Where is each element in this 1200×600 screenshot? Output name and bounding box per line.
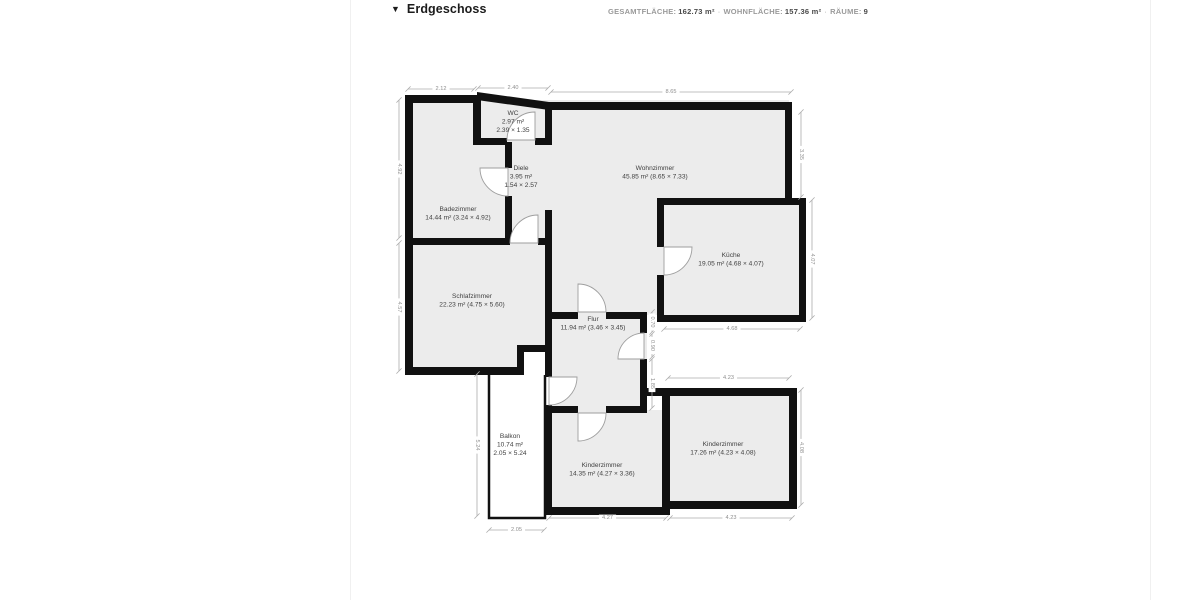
dimension-1.85: 1.85 (649, 356, 656, 410)
dimension-label: 2.12 (436, 86, 447, 92)
dimension-label: 3.35 (798, 149, 804, 160)
dimension-0.90: 0.90 (649, 331, 656, 359)
dimension-label: 4.07 (809, 254, 815, 265)
dimension-label: 2.40 (508, 85, 519, 91)
dimension-2.12: 2.12 (405, 86, 476, 93)
dimension-4.92: 4.92 (396, 97, 403, 240)
dimension-4.08: 4.08 (798, 387, 805, 507)
dimension-label: 4.27 (602, 515, 613, 521)
dimension-2.40: 2.40 (475, 85, 550, 92)
dimension-4.23: 4.23 (665, 375, 791, 382)
dimension-4.68: 4.68 (661, 326, 802, 333)
dimension-label: 4.23 (723, 375, 734, 381)
dimension-4.27: 4.27 (546, 515, 668, 522)
dimension-3.35: 3.35 (798, 109, 805, 199)
floor-plan-svg: 2.122.408.654.924.575.243.354.074.084.68… (0, 0, 1200, 600)
dimension-label: 2.05 (511, 527, 522, 533)
floorplan-page: ▼ Erdgeschoss GESAMTFLÄCHE:162.73 m²·WOH… (0, 0, 1200, 600)
dimension-8.65: 8.65 (548, 89, 793, 96)
dimension-label: 1.85 (649, 378, 655, 389)
dimension-label: 4.08 (798, 442, 804, 453)
dimension-label: 8.65 (666, 89, 677, 95)
dimension-4.23: 4.23 (667, 515, 794, 522)
dimension-label: 4.92 (396, 164, 402, 175)
dimension-label: 5.24 (474, 440, 480, 451)
dimension-label: 4.23 (726, 515, 737, 521)
dimension-4.07: 4.07 (809, 197, 816, 320)
dimension-label: 0.70 (649, 317, 655, 328)
dimension-label: 0.90 (649, 340, 655, 351)
dimension-label: 4.68 (727, 326, 738, 332)
dimension-2.05: 2.05 (486, 527, 546, 534)
shaft-niche (524, 352, 545, 375)
dimension-4.57: 4.57 (396, 240, 403, 373)
room-area-kinderzimmer-1 (549, 410, 664, 510)
dimension-label: 4.57 (396, 302, 402, 313)
room-area-kinderzimmer-2 (667, 393, 791, 503)
room-area-wohnzimmer (549, 100, 657, 315)
dimension-5.24: 5.24 (474, 371, 481, 518)
